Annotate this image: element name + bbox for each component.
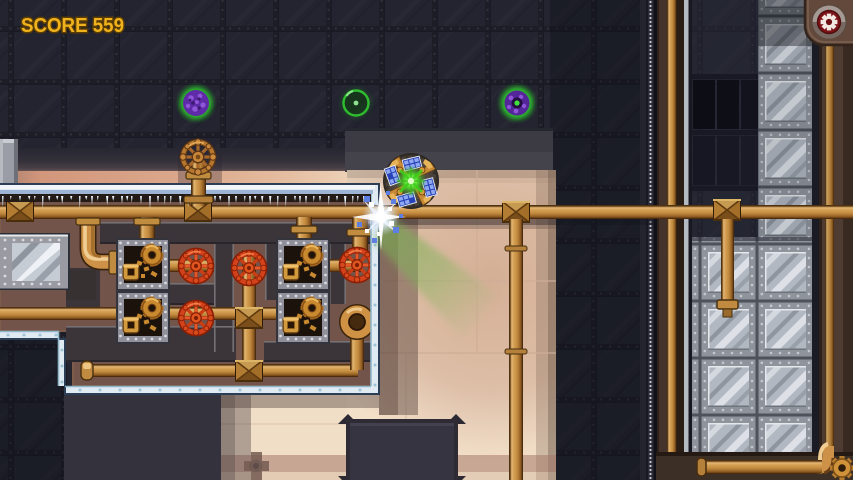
svg-text:SCORE 559: SCORE 559 <box>21 15 124 37</box>
